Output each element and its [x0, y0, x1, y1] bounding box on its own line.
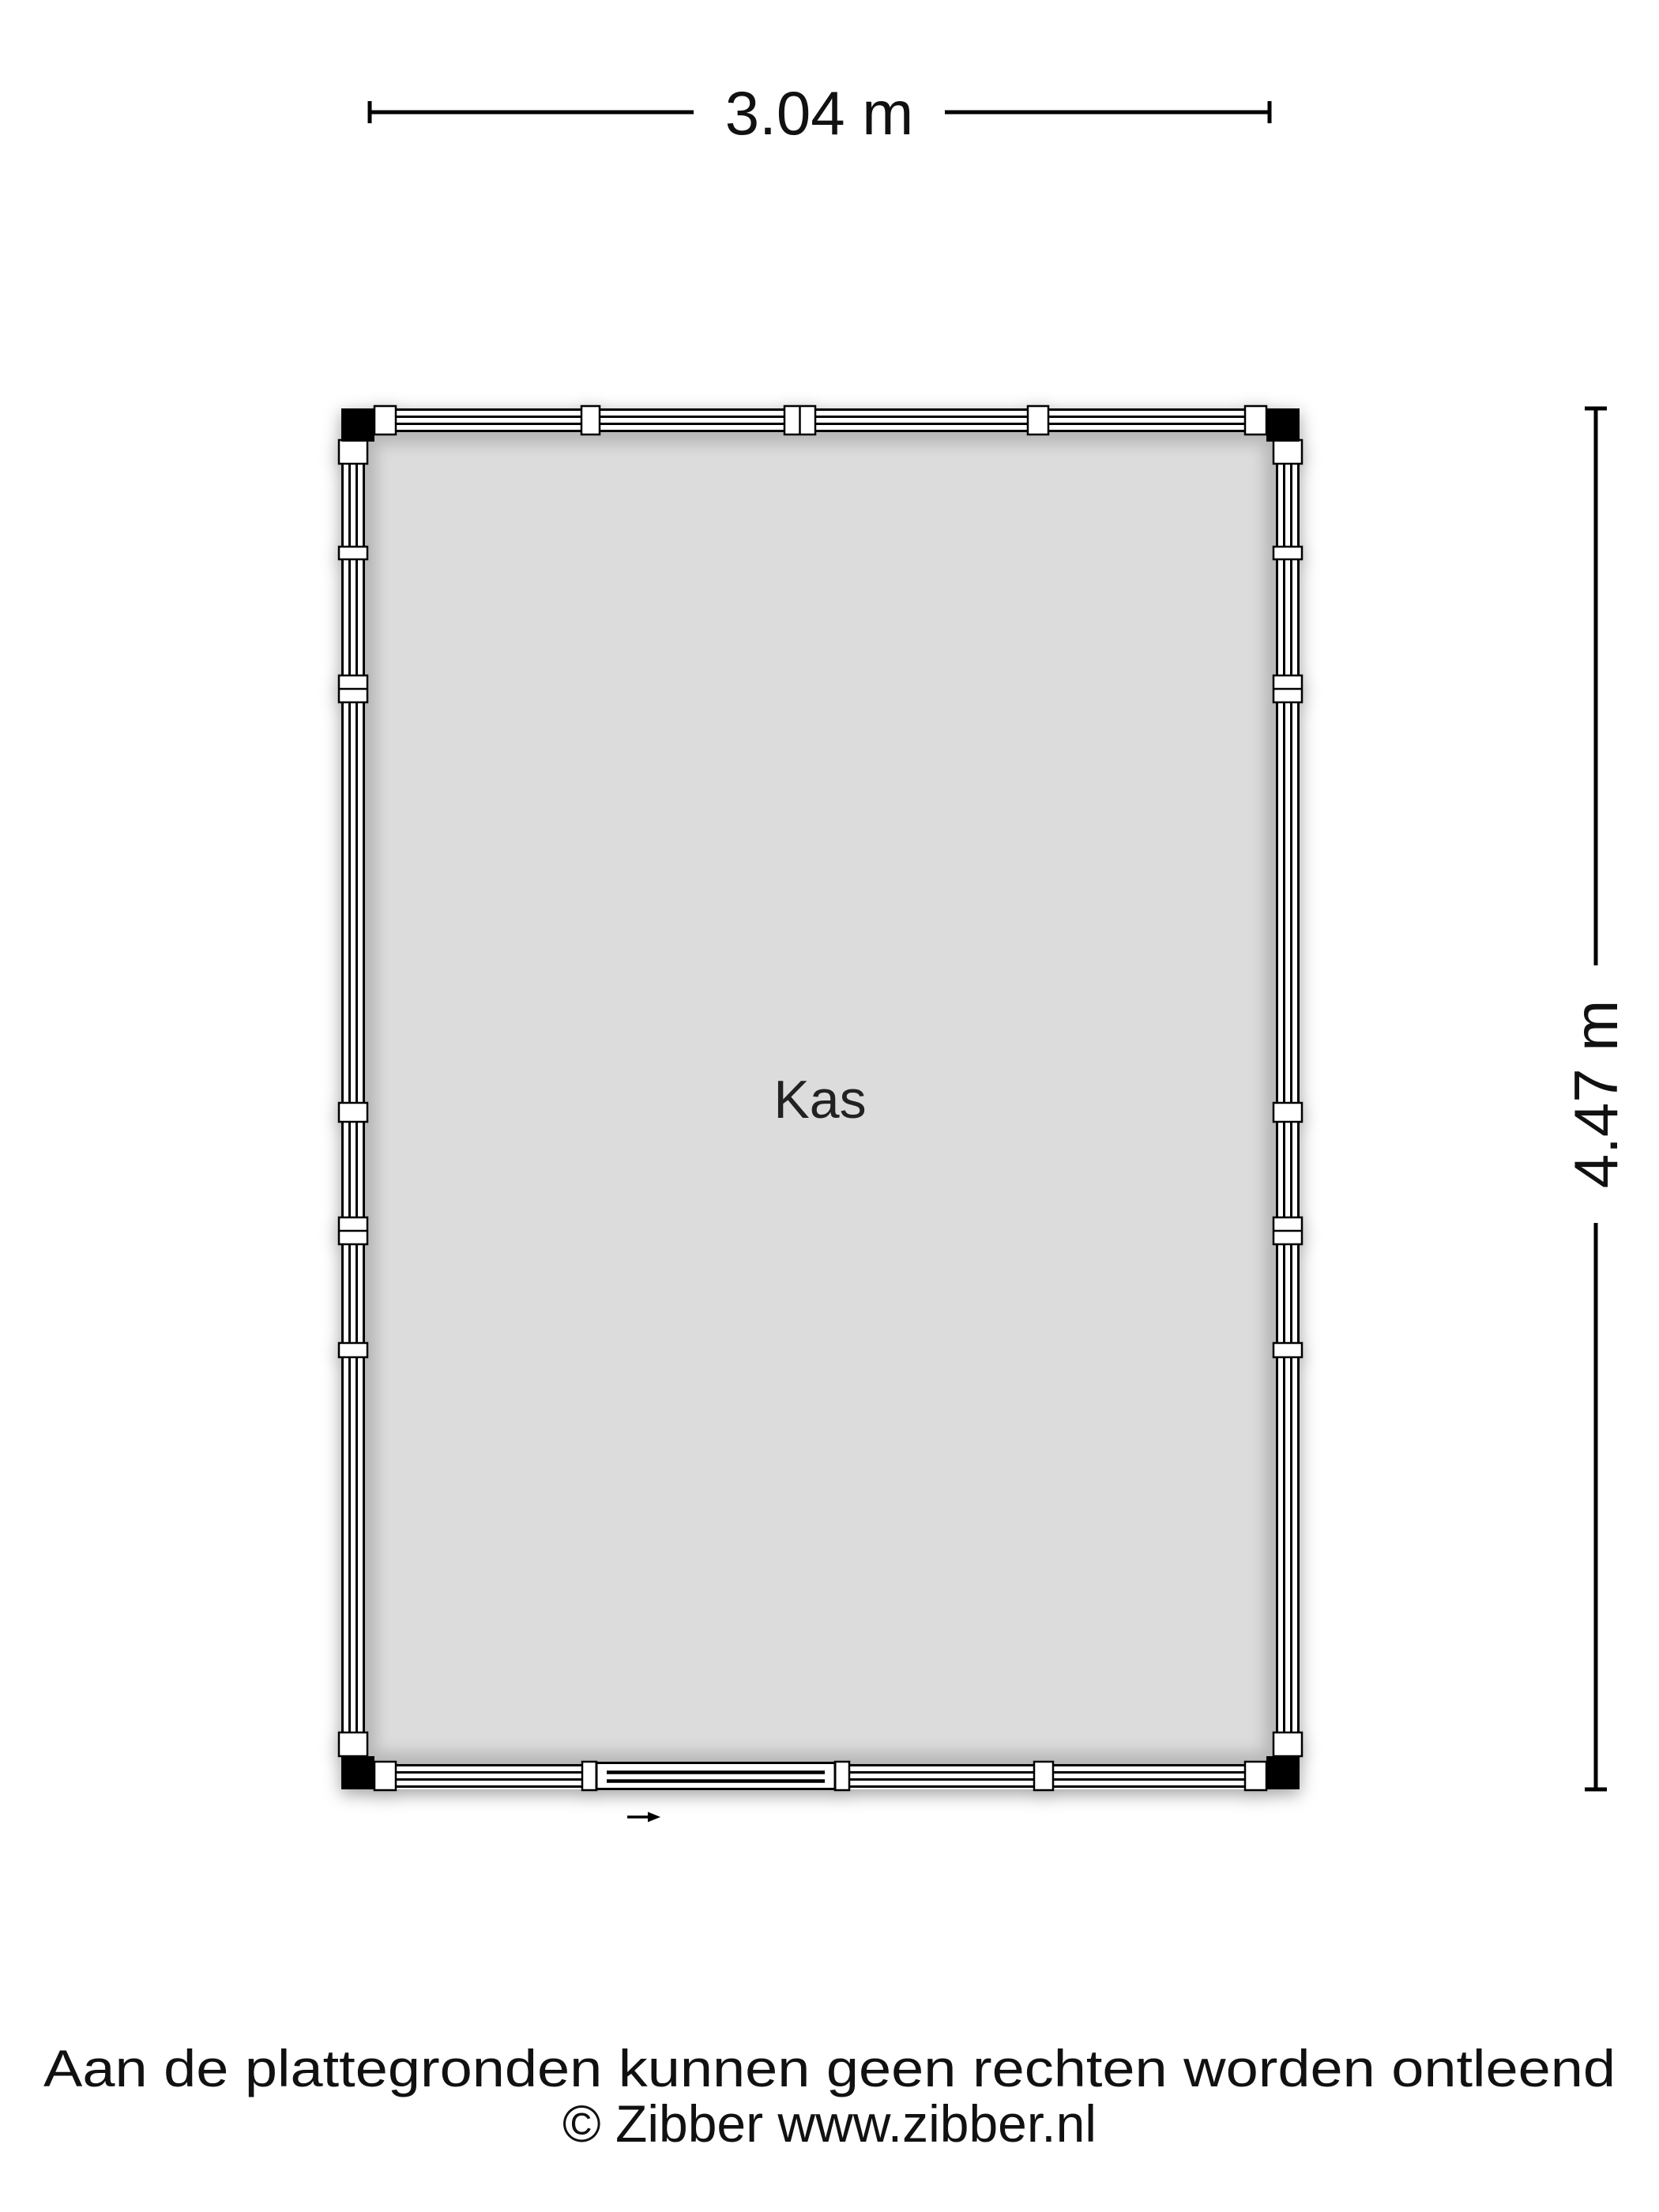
window-mullion [1273, 440, 1302, 464]
window-mullion [1245, 406, 1266, 434]
window-mullion [1245, 1762, 1266, 1790]
window-mullion [339, 1343, 367, 1357]
window-mullion [1273, 1732, 1302, 1756]
window-mullion [339, 440, 367, 464]
dimension-right-label: 4.47 m [1561, 1000, 1631, 1188]
floorplan-page: 3.04 m 4.47 m [0, 0, 1659, 2212]
window-mullion [1273, 547, 1302, 559]
floorplan-svg: 3.04 m 4.47 m [0, 0, 1659, 2212]
window-mullion [339, 547, 367, 559]
window-mullion [1034, 1762, 1053, 1790]
corner-post-top-right [1266, 408, 1300, 442]
window-mullion [374, 1762, 396, 1790]
window-mullion [1273, 1343, 1302, 1357]
window-mullion [339, 1103, 367, 1122]
window-mullion [1028, 406, 1048, 434]
window-mullion [1273, 1103, 1302, 1122]
window-mullion [835, 1762, 849, 1790]
window-mullion [581, 406, 600, 434]
window-mullion [374, 406, 396, 434]
corner-post-bottom-left [341, 1756, 374, 1789]
window-mullion [582, 1762, 596, 1790]
dimension-top-label: 3.04 m [725, 78, 913, 148]
corner-post-bottom-right [1266, 1756, 1300, 1789]
door-arrow-icon [627, 1812, 660, 1823]
room-label: Kas [773, 1070, 866, 1130]
sliding-door [596, 1763, 835, 1789]
window-mullion [339, 1732, 367, 1756]
footer-disclaimer: Aan de plattegronden kunnen geen rechten… [43, 2039, 1616, 2097]
footer-copyright: © Zibber www.zibber.nl [562, 2094, 1097, 2153]
corner-post-top-left [341, 408, 374, 442]
